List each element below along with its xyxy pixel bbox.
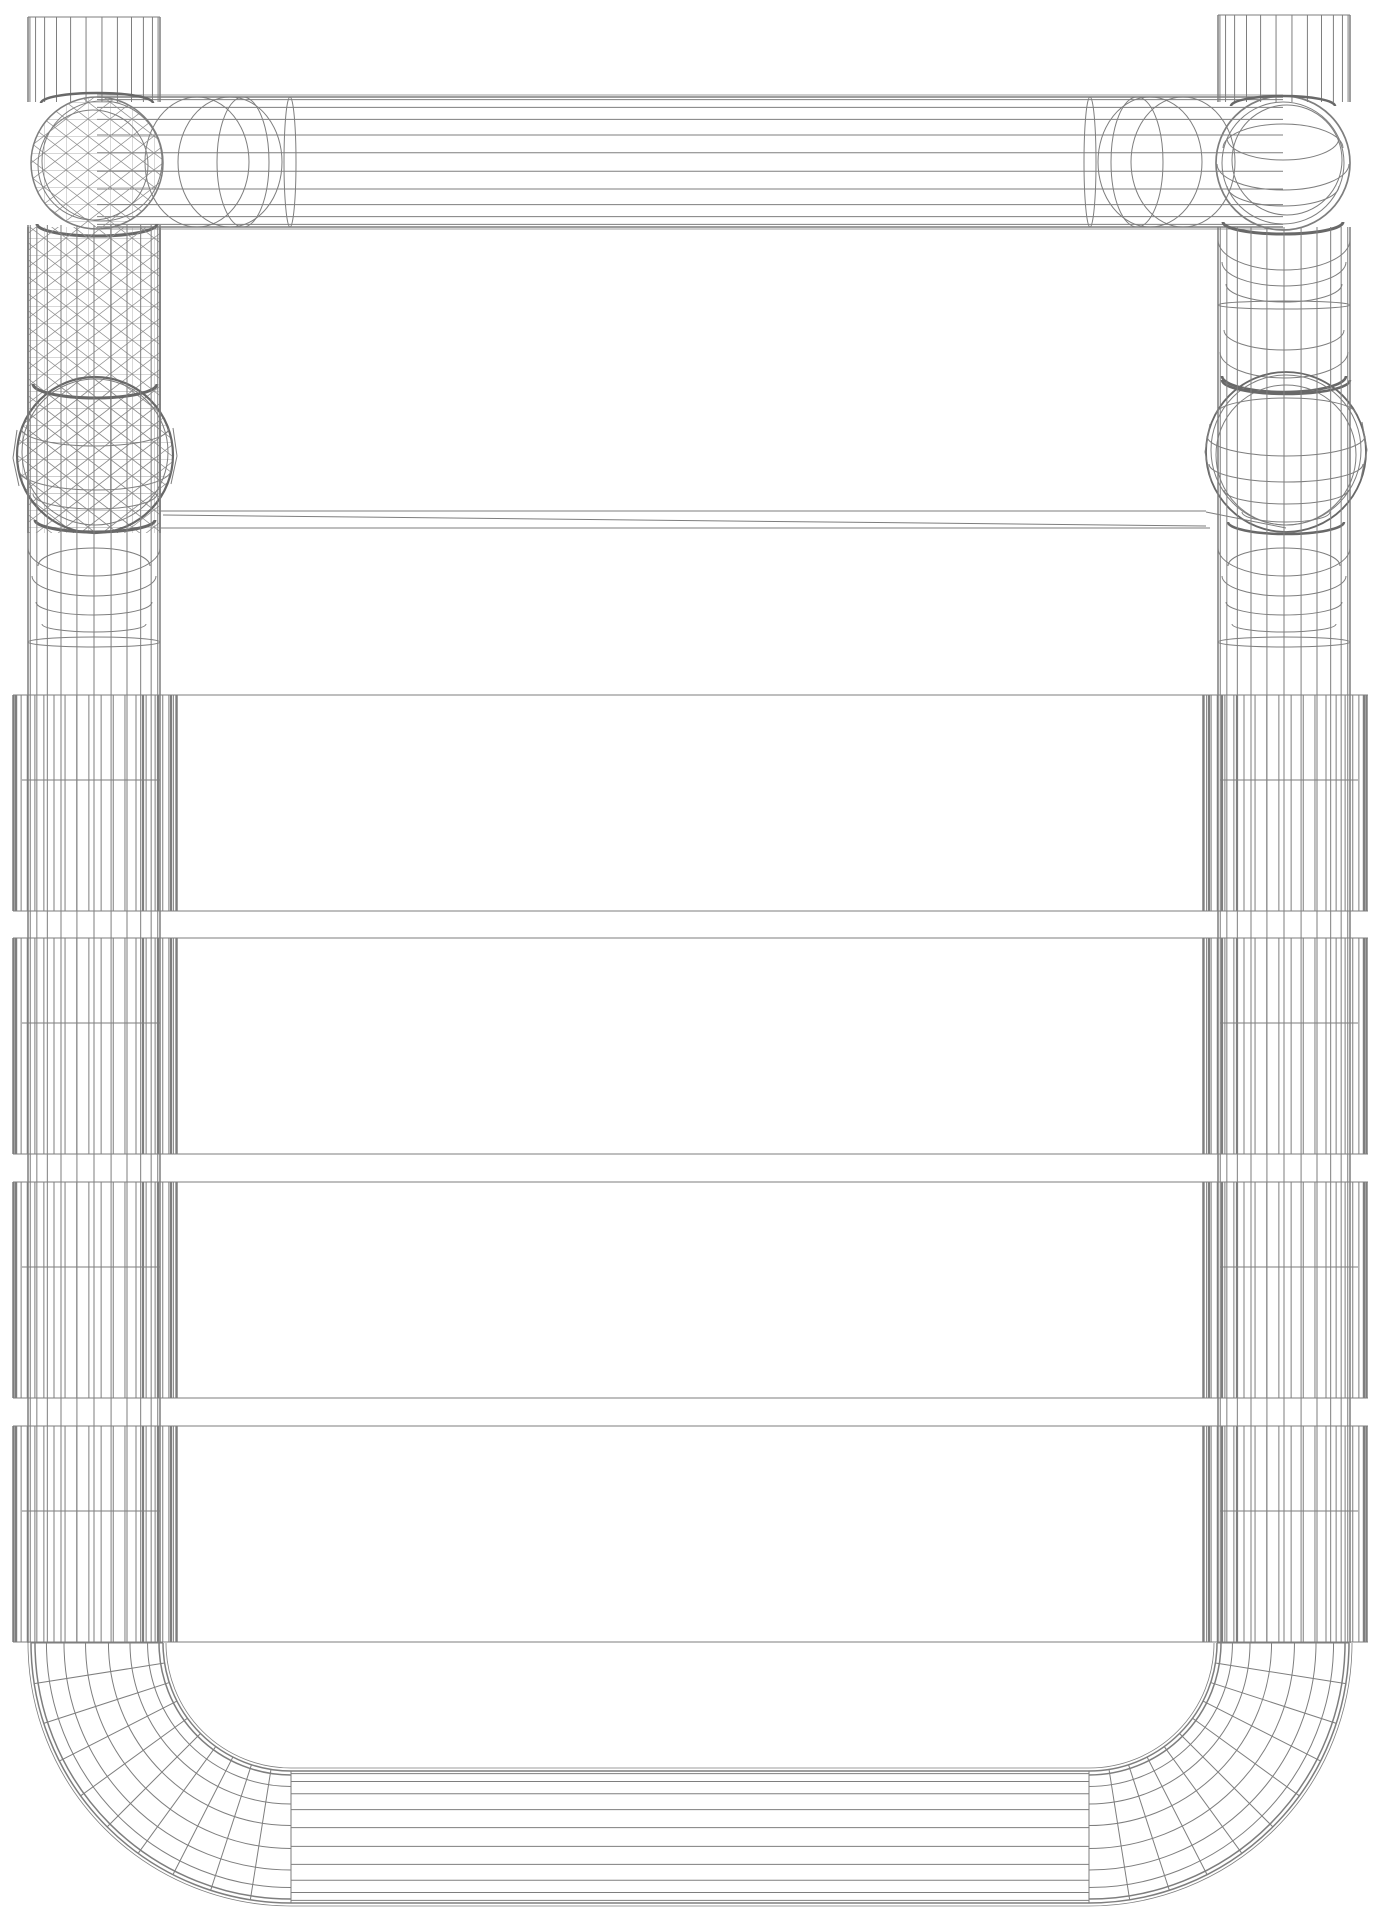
wireframe-render	[0, 0, 1380, 1920]
right-bottom-bend	[1089, 1643, 1352, 1906]
slat-band-1	[13, 695, 1368, 911]
left-elbow-joint	[31, 93, 163, 236]
thin-rung	[160, 511, 1210, 528]
left-bottom-bend	[28, 1643, 291, 1906]
bottom-tube	[291, 1768, 1089, 1906]
top-right-stub	[1218, 15, 1350, 102]
top-tube	[97, 95, 1283, 229]
side-tube-verticals	[28, 225, 1350, 1643]
right-sphere-joint	[1205, 372, 1367, 534]
right-elbow-joint	[1216, 96, 1350, 234]
slat-band-4	[13, 1426, 1368, 1642]
cad-viewport	[0, 0, 1380, 1920]
top-left-stub	[28, 17, 160, 102]
slat-band-3	[13, 1182, 1368, 1398]
slat-band-2	[13, 938, 1368, 1154]
